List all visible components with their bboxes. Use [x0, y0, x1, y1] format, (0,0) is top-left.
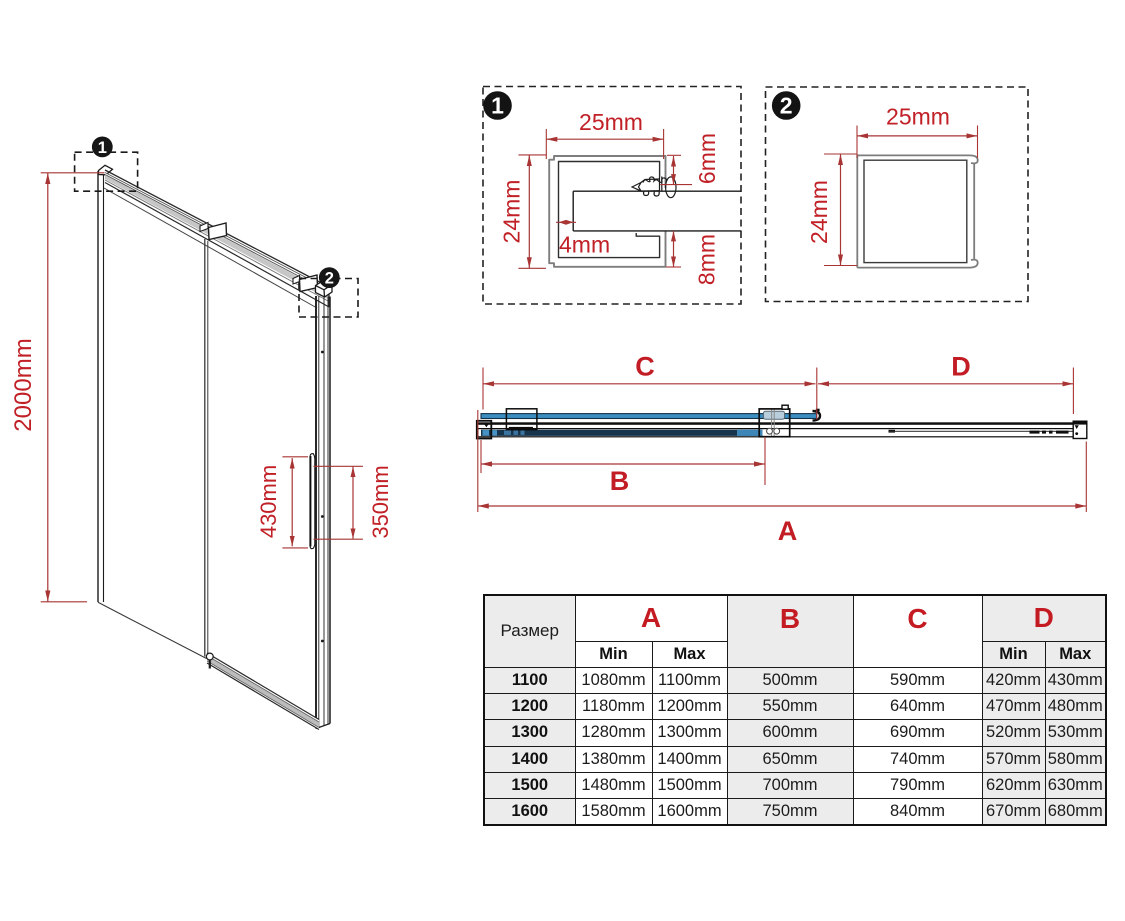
svg-text:1: 1 — [98, 139, 107, 157]
svg-text:25mm: 25mm — [579, 109, 643, 135]
svg-text:2: 2 — [325, 270, 334, 288]
svg-text:24mm: 24mm — [806, 180, 832, 244]
svg-text:8mm: 8mm — [694, 234, 720, 285]
svg-text:430mm: 430mm — [256, 465, 281, 538]
svg-text:A: A — [778, 516, 798, 546]
svg-text:4mm: 4mm — [559, 232, 610, 258]
svg-text:D: D — [951, 352, 971, 382]
svg-text:25mm: 25mm — [886, 104, 950, 130]
svg-text:2000mm: 2000mm — [10, 338, 37, 431]
svg-text:350mm: 350mm — [368, 465, 393, 538]
svg-text:C: C — [635, 352, 655, 382]
svg-text:24mm: 24mm — [499, 180, 525, 244]
svg-text:6mm: 6mm — [694, 133, 720, 184]
svg-text:1: 1 — [491, 93, 504, 119]
svg-text:B: B — [610, 466, 630, 496]
svg-text:2: 2 — [780, 93, 793, 119]
